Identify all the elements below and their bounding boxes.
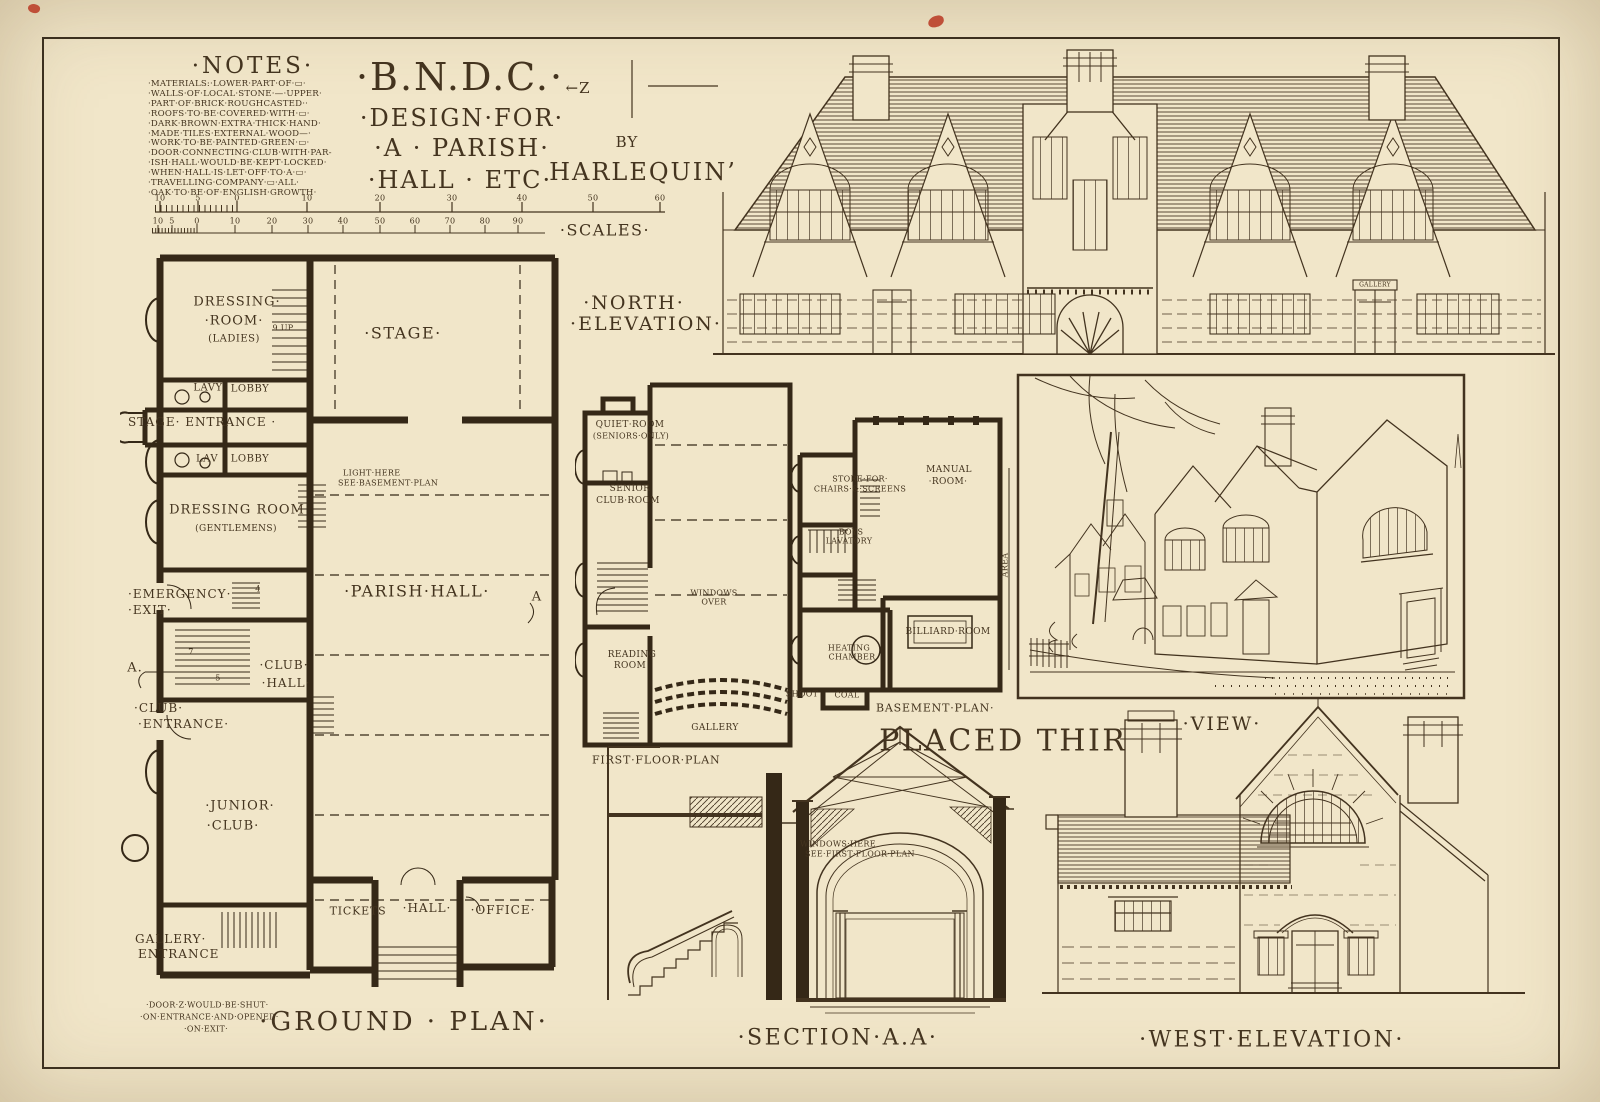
scale-tick: 10 [155,194,166,203]
room-label-boys-lavatory: BOYS [839,528,864,537]
room-label-junior-club: ·CLUB· [207,819,260,834]
note-light-here: LIGHT·HERE [343,469,400,478]
sheet-title-line1: ·B.N.D.C.· [356,55,564,99]
room-label-store: STORE·FOR· [832,475,887,484]
section-note: SEE·FIRST·FLOOR·PLAN [805,850,915,859]
room-label-dressing-gents: DRESSING ROOM [169,503,305,518]
note-windows-over: WINDOWS [690,589,737,598]
notes-text: ·MATERIALS:·LOWER·PART·OF·▭· ·WALLS·OF·L… [148,80,360,199]
scale-tick: 30 [447,194,458,203]
label-emergency-exit: ·EXIT· [128,603,172,617]
room-label-senior-club: SENIOR [610,484,651,494]
room-label-dressing-ladies: (LADIES) [208,334,260,345]
scale-tick: 40 [517,194,528,203]
scale-tick: 5 [169,217,174,226]
label-shoot: SHOOT [786,690,818,699]
drawing-sheet: ·NOTES· ·MATERIALS:·LOWER·PART·OF·▭· ·WA… [0,0,1600,1102]
label-club-entrance: ·CLUB· [134,701,183,715]
basement-plan-drawing [788,368,1018,723]
section-marker-a: A [532,590,542,605]
label-club-entrance: ·ENTRANCE· [138,717,229,731]
room-label-store: CHAIRS·&·SCREENS [814,485,906,494]
scale-tick: 0 [234,194,239,203]
room-label-dressing-ladies: ·ROOM· [205,314,264,329]
room-label-manual-room: ·ROOM· [929,477,968,487]
room-label-quiet-room: QUIET·ROOM [596,420,665,430]
door-z-mark: ←Z [566,79,591,97]
caption-north-elevation: ·NORTH· [583,292,685,314]
caption-section-aa: ·SECTION·A.A· [738,1026,939,1051]
notes-heading: ·NOTES· [192,53,315,79]
scale-tick: 40 [338,217,349,226]
door-z-note: ·ON·ENTRANCE·AND·OPENED· [140,1013,279,1022]
note-windows-over: OVER [701,598,726,607]
section-note: WINDOWS·HERE [800,840,876,849]
scale-tick: 20 [375,194,386,203]
room-label-stage: ·STAGE· [364,324,441,343]
scale-tick: 10 [153,217,164,226]
label-stage-entrance: STAGE· ENTRANCE · [128,415,276,429]
door-z-note: ·ON·EXIT· [184,1025,228,1034]
note-light-here: SEE·BASEMENT·PLAN [338,479,438,488]
scale-tick: 60 [655,194,666,203]
room-label-reading-room: ROOM [614,661,646,671]
scale-tick: 80 [480,217,491,226]
room-label-junior-club: ·JUNIOR· [205,799,274,814]
room-label-quiet-room: (SENIORS·ONLY) [593,432,669,441]
scales-label: ·SCALES· [560,221,650,240]
room-label-club-hall: ·HALL· [262,676,311,690]
scale-tick: 0 [194,217,199,226]
room-label-hall: ·HALL· [403,901,452,915]
room-label-senior-club: CLUB·ROOM [596,496,660,506]
room-label-dressing-gents: (GENTLEMENS) [195,524,277,534]
scale-tick: 5 [195,194,200,203]
scale-tick: 50 [588,194,599,203]
room-label-reading-room: READING [608,650,656,660]
caption-west-elevation: ·WEST·ELEVATION· [1139,1028,1405,1053]
scale-tick: 10 [230,217,241,226]
scale-tick: 60 [410,217,421,226]
room-label-parish-hall: ·PARISH·HALL· [344,582,490,601]
caption-north-elevation: ·ELEVATION· [570,313,722,335]
scale-tick: 90 [513,217,524,226]
room-label-manual-room: MANUAL [926,465,972,475]
room-label-lobby: LOBBY [231,454,269,465]
room-label-lav: LAV [196,454,218,465]
room-label-dressing-ladies: DRESSING· [193,295,280,310]
room-label-boys-lavatory: LAVATORY [826,537,873,546]
room-label-billiard-room: BILLIARD·ROOM [906,627,991,637]
scale-tick: 30 [303,217,314,226]
door-z-note: ·DOOR·Z·WOULD·BE·SHUT· [146,1001,268,1010]
scale-tick: 20 [267,217,278,226]
label-area: AREA [1001,553,1010,578]
stair-count: 4 [255,585,260,594]
perspective-view-drawing [1015,372,1467,702]
north-elevation-drawing [705,42,1563,362]
room-label-heating-chamber: HEATING [828,644,870,653]
scale-tick: 70 [445,217,456,226]
sheet-title-line2: ·DESIGN·FOR· [360,104,564,132]
room-label-lavy: LAVY [193,383,222,394]
stair-count: 5 [215,674,220,683]
room-label-tickets: TICKETS [330,905,387,918]
scale-tick: 10 [302,194,313,203]
label-coal: COAL [835,691,860,700]
room-label-heating-chamber: CHAMBER [829,653,876,662]
sheet-title-line3: ·A · PARISH· [374,134,550,162]
by-label: BY [616,133,639,151]
caption-basement-plan: BASEMENT·PLAN· [876,702,994,715]
ground-plan-drawing [120,245,570,1045]
label-gallery-entrance: ENTRANCE [138,947,219,961]
paint-speck [927,14,945,29]
gallery-door-sign: GALLERY [1359,282,1391,289]
stair-label-9up: 9 UP [273,324,294,333]
paint-speck [27,2,41,15]
section-marker-a: A. [127,661,143,676]
label-gallery-entrance: GALLERY· [135,932,206,946]
stair-count: 7 [188,648,193,657]
section-aa-drawing [600,715,1015,1015]
label-emergency-exit: ·EMERGENCY· [128,587,231,601]
caption-ground-plan: ·GROUND · PLAN· [259,1007,549,1037]
scale-tick: 50 [375,217,386,226]
room-label-office: ·OFFICE· [471,903,536,917]
room-label-club-hall: ·CLUB· [259,658,308,672]
west-elevation-drawing [1030,695,1535,1010]
room-label-lobby: LOBBY [231,384,269,395]
